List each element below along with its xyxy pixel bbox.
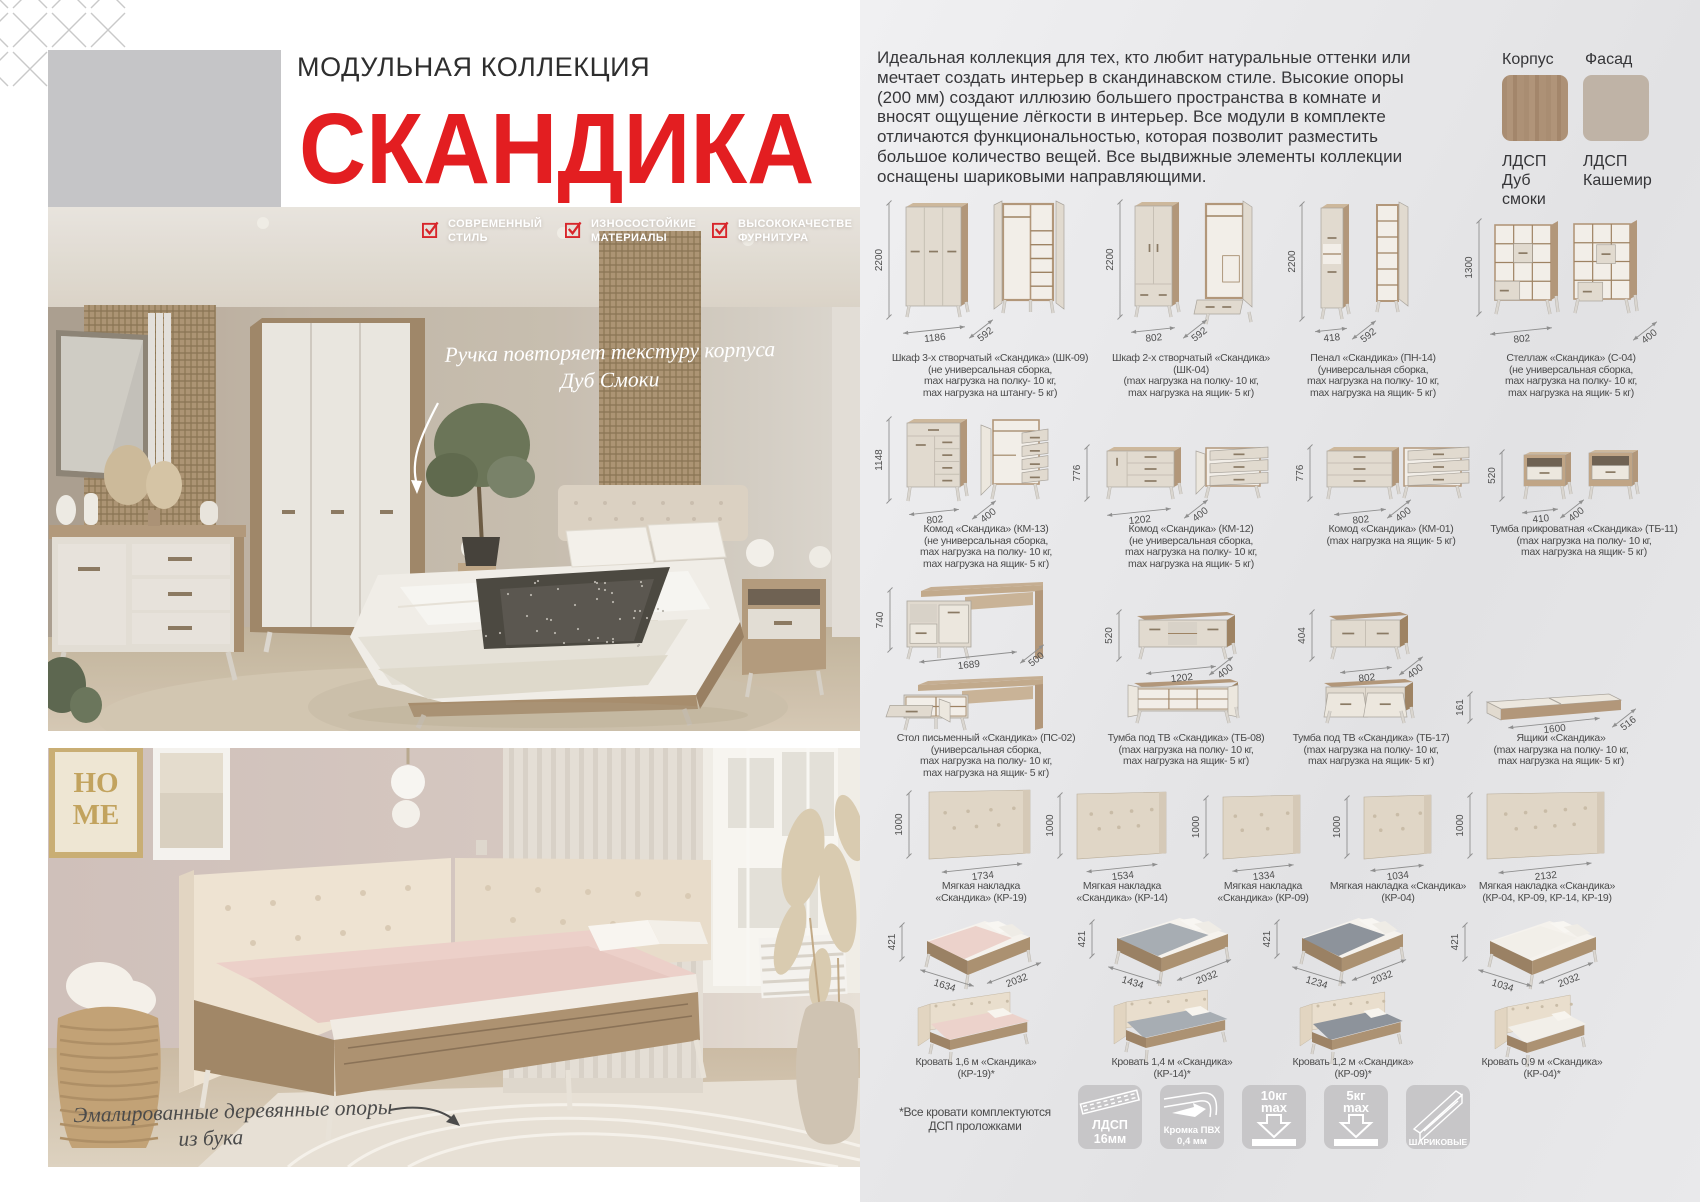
svg-text:400: 400: [1567, 505, 1587, 524]
svg-text:1689: 1689: [957, 659, 981, 672]
svg-text:400: 400: [1406, 662, 1426, 681]
svg-text:2032: 2032: [1370, 969, 1395, 987]
svg-text:2200: 2200: [874, 248, 885, 271]
svg-text:400: 400: [1640, 327, 1660, 346]
svg-text:Кромка ПВХ: Кромка ПВХ: [1164, 1125, 1221, 1136]
svg-text:2200: 2200: [1287, 250, 1298, 273]
svg-text:400: 400: [1191, 505, 1211, 524]
svg-text:802: 802: [1513, 333, 1531, 346]
svg-text:1186: 1186: [924, 332, 947, 345]
svg-text:802: 802: [1358, 672, 1376, 685]
svg-text:1148: 1148: [874, 449, 885, 471]
svg-text:max: max: [1261, 1100, 1288, 1115]
svg-text:ШАРИКОВЫЕ: ШАРИКОВЫЕ: [1409, 1137, 1468, 1147]
svg-text:776: 776: [1072, 464, 1083, 481]
svg-text:1000: 1000: [894, 813, 905, 836]
svg-text:HO: HO: [73, 767, 118, 799]
svg-text:404: 404: [1297, 627, 1308, 644]
svg-text:802: 802: [1145, 332, 1163, 345]
svg-text:400: 400: [1394, 505, 1414, 524]
svg-text:520: 520: [1487, 467, 1498, 484]
svg-text:592: 592: [1190, 325, 1210, 344]
svg-text:520: 520: [1104, 627, 1115, 644]
svg-text:2032: 2032: [1005, 972, 1030, 990]
svg-text:1000: 1000: [1455, 814, 1466, 837]
svg-text:421: 421: [1262, 930, 1273, 947]
svg-text:400: 400: [1216, 662, 1236, 681]
svg-text:1000: 1000: [1332, 815, 1343, 838]
svg-text:1000: 1000: [1191, 815, 1202, 838]
svg-text:из бука: из бука: [178, 1125, 243, 1151]
svg-text:421: 421: [1450, 933, 1461, 950]
svg-text:500: 500: [1027, 650, 1047, 669]
svg-text:592: 592: [1359, 326, 1379, 345]
svg-text:516: 516: [1619, 714, 1639, 733]
svg-text:2200: 2200: [1105, 248, 1116, 271]
svg-text:776: 776: [1295, 464, 1306, 481]
svg-text:1000: 1000: [1045, 814, 1056, 837]
svg-text:592: 592: [976, 325, 996, 344]
svg-text:2032: 2032: [1557, 972, 1582, 990]
svg-text:16мм: 16мм: [1094, 1132, 1126, 1146]
svg-text:Дуб Смоки: Дуб Смоки: [558, 367, 659, 393]
svg-text:ME: ME: [73, 799, 120, 831]
svg-text:421: 421: [887, 933, 898, 950]
svg-text:161: 161: [1455, 699, 1466, 716]
svg-text:max: max: [1343, 1100, 1370, 1115]
svg-text:418: 418: [1323, 332, 1341, 345]
svg-text:2032: 2032: [1195, 969, 1220, 987]
svg-text:421: 421: [1077, 930, 1088, 947]
svg-text:740: 740: [875, 611, 886, 628]
svg-text:0,4 мм: 0,4 мм: [1177, 1136, 1207, 1147]
svg-text:1300: 1300: [1464, 256, 1475, 279]
